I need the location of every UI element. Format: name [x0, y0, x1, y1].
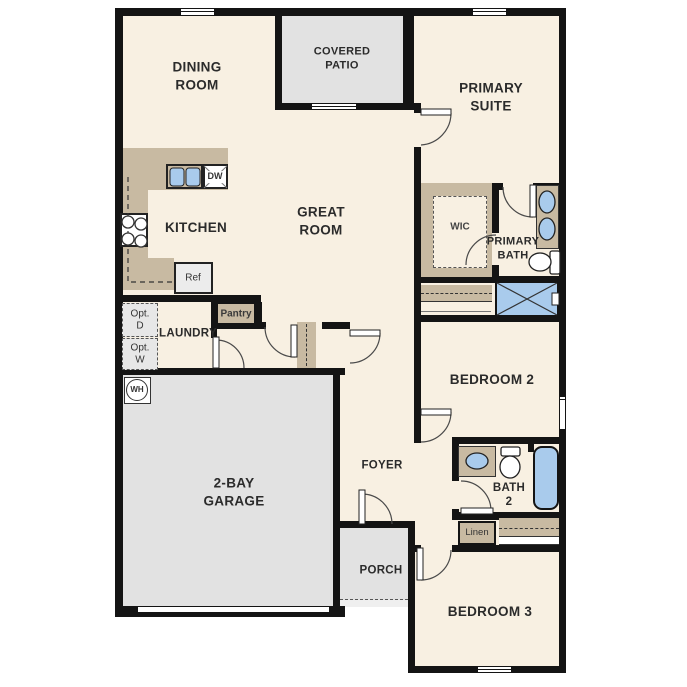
- label-primary-bath: PRIMARY BATH: [487, 235, 539, 264]
- label-pantry: Pantry: [220, 308, 251, 321]
- label-laundry: LAUNDRY: [159, 327, 217, 342]
- label-covered-patio: COVERED PATIO: [314, 45, 371, 74]
- label-linen: Linen: [465, 527, 488, 539]
- door-leaf: [461, 508, 493, 514]
- label-great-room: GREAT ROOM: [297, 203, 345, 238]
- floor-plan: DINING ROOM COVERED PATIO PRIMARY SUITE …: [0, 0, 687, 687]
- sink-basin: [170, 168, 184, 186]
- sink-icon: [539, 218, 555, 240]
- door-leaf: [421, 409, 451, 415]
- burner-icon: [135, 218, 147, 230]
- label-foyer: FOYER: [361, 459, 402, 474]
- door-arc-foyer: [350, 333, 380, 363]
- door-arc-laundry: [216, 340, 244, 368]
- label-porch: PORCH: [359, 564, 402, 579]
- shower-cross: [497, 283, 557, 315]
- door-leaf: [417, 548, 423, 580]
- label-kitchen: KITCHEN: [165, 219, 227, 237]
- label-opt-dryer: Opt. D: [131, 309, 150, 332]
- door-leaf: [530, 185, 536, 217]
- door-leaf: [291, 325, 297, 357]
- label-dining-room: DINING ROOM: [172, 58, 221, 93]
- burner-icon: [122, 233, 134, 245]
- door-leaf: [421, 109, 451, 115]
- plan-linework: [0, 0, 687, 687]
- label-dw: DW: [207, 171, 224, 183]
- door-arc-bedroom2: [421, 412, 451, 442]
- door-arc-primary-bath: [503, 187, 533, 217]
- door-leaf: [359, 490, 365, 524]
- label-ref: Ref: [185, 272, 201, 285]
- door-arc-primary-suite: [421, 113, 451, 145]
- label-wic: WIC: [450, 221, 469, 234]
- label-bath2: BATH 2: [493, 482, 525, 510]
- door-arc-bedroom3: [421, 550, 451, 580]
- label-garage: 2-BAY GARAGE: [203, 474, 264, 509]
- burner-icon: [135, 235, 147, 247]
- door-leaf: [350, 330, 380, 336]
- label-water-heater: WH: [130, 385, 143, 395]
- door-arc-bath2: [461, 481, 491, 511]
- sink-basin: [186, 168, 200, 186]
- toilet-icon: [500, 456, 520, 478]
- sink-icon: [539, 191, 555, 213]
- label-primary-suite: PRIMARY SUITE: [459, 79, 523, 114]
- door-arc-front-door: [362, 494, 392, 524]
- burner-icon: [122, 216, 134, 228]
- label-bedroom3: BEDROOM 3: [448, 603, 532, 621]
- toilet-tank: [501, 447, 520, 456]
- label-bedroom2: BEDROOM 2: [450, 371, 534, 389]
- sink-icon: [466, 453, 488, 469]
- label-opt-washer: Opt. W: [131, 343, 150, 366]
- shower-door: [552, 293, 559, 305]
- door-leaf: [213, 337, 219, 368]
